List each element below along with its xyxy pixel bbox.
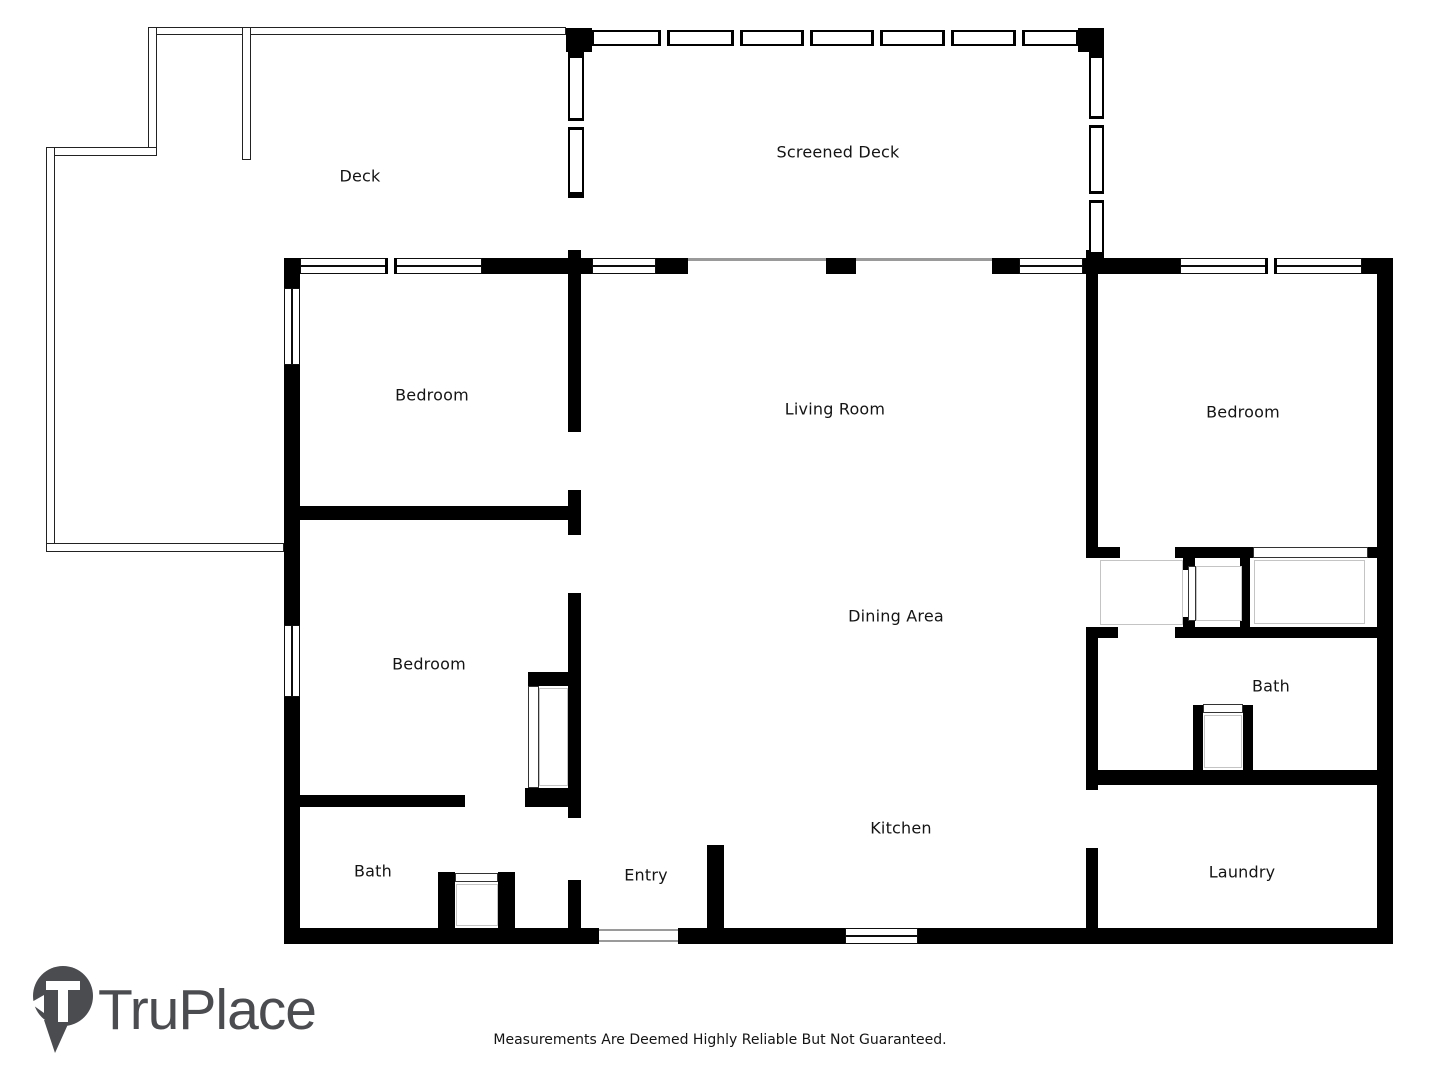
wall [284, 506, 568, 520]
room-label-bedroom-bottom-left: Bedroom [392, 655, 466, 674]
wall [1086, 848, 1098, 928]
wall [1243, 705, 1253, 770]
deck-railing [46, 147, 157, 156]
door-threshold [599, 940, 678, 942]
screen-rail-mullion [658, 30, 670, 46]
room-label-bedroom-top-left: Bedroom [395, 386, 469, 405]
window-pane-line [593, 265, 655, 267]
window [284, 625, 300, 697]
window-pane-line [846, 935, 917, 937]
wall [568, 490, 581, 535]
wall [1086, 547, 1120, 558]
door-threshold [599, 929, 678, 931]
wall [678, 928, 845, 944]
closet-sliding-door [1253, 547, 1368, 558]
hall-outline [1100, 560, 1183, 625]
room-label-bath-left: Bath [354, 862, 392, 881]
screen-rail-mullion [1013, 30, 1025, 46]
disclaimer-text: Measurements Are Deemed Highly Reliable … [0, 1032, 1440, 1048]
room-label-kitchen: Kitchen [870, 819, 932, 838]
wall [1086, 770, 1377, 785]
wall [566, 28, 592, 52]
deck-railing [148, 27, 157, 150]
opening-line [688, 258, 826, 261]
wall [992, 258, 1019, 274]
wall [438, 872, 455, 928]
room-label-screened-deck: Screened Deck [777, 143, 900, 162]
wall [568, 880, 581, 928]
wall [525, 788, 581, 807]
wall [826, 258, 856, 274]
opening-line [856, 258, 992, 261]
screen-rail-mullion [942, 30, 954, 46]
screen-rail-cap [568, 52, 584, 58]
deck-railing [46, 147, 55, 552]
screen-rail-cap [1089, 52, 1104, 58]
window [592, 258, 656, 274]
deck-railing [148, 27, 566, 35]
wall [482, 258, 592, 274]
window-pane-line [291, 289, 293, 364]
closet-interior [1254, 560, 1365, 624]
shower-interior [1204, 715, 1242, 768]
wall [918, 928, 1393, 944]
wall [1377, 258, 1393, 944]
wall [1368, 547, 1377, 558]
closet-door [528, 686, 539, 788]
screen-rail-cap [1089, 252, 1104, 258]
window [845, 928, 918, 944]
window-mullion [1265, 258, 1277, 274]
screen-rail-mullion [1089, 191, 1104, 203]
wall [1362, 258, 1393, 274]
wall [656, 258, 688, 274]
wall [1078, 28, 1104, 52]
room-label-bedroom-right: Bedroom [1206, 403, 1280, 422]
shower-door [455, 873, 498, 882]
wall [1175, 627, 1377, 638]
wall [568, 250, 581, 258]
room-label-living-room: Living Room [785, 400, 885, 419]
wall [498, 872, 515, 928]
wall [1086, 627, 1118, 638]
window-mullion [385, 258, 397, 274]
wall [568, 593, 581, 818]
room-label-deck: Deck [339, 167, 380, 186]
screen-rail-mullion [568, 118, 584, 130]
room-label-laundry: Laundry [1209, 863, 1276, 882]
room-label-entry: Entry [624, 866, 668, 885]
wall [284, 928, 599, 944]
wall [568, 274, 581, 432]
screen-rail-mullion [731, 30, 743, 46]
screen-rail-mullion [871, 30, 883, 46]
deck-railing [242, 27, 251, 160]
screen-rail-mullion [801, 30, 813, 46]
wall [284, 795, 465, 807]
wall [1193, 705, 1203, 770]
wall [1086, 274, 1098, 547]
room-label-bath-right: Bath [1252, 677, 1290, 696]
floor-plan-canvas: Deck Screened Deck Bedroom Living Room B… [0, 0, 1440, 1080]
window-pane-line [291, 626, 293, 696]
screen-rail-cap [568, 192, 584, 198]
window-pane-line [1020, 265, 1082, 267]
wall [1086, 627, 1098, 790]
closet-door [1188, 566, 1196, 621]
wall [528, 672, 568, 686]
screen-rail-mullion [1089, 116, 1104, 128]
deck-railing [46, 543, 284, 552]
closet-interior [539, 688, 568, 786]
window [284, 288, 300, 365]
wall [1083, 258, 1180, 274]
screen-rail-right [1089, 52, 1104, 258]
window [1019, 258, 1083, 274]
closet-interior [1196, 566, 1242, 621]
wall [707, 845, 724, 928]
shower-door [1203, 704, 1243, 713]
room-label-dining-area: Dining Area [848, 607, 944, 626]
shower-interior [456, 884, 498, 926]
